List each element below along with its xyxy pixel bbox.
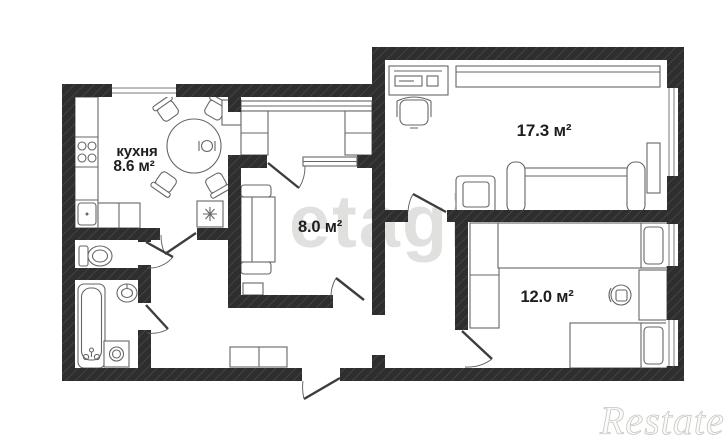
wall-segment xyxy=(228,84,385,97)
wall-segment xyxy=(138,330,151,381)
office-chair xyxy=(397,97,431,128)
window-kitchen xyxy=(112,84,176,97)
wall-segment xyxy=(62,268,151,280)
room-area-kitchen: 8.6 м² xyxy=(113,158,154,175)
wall-shelf xyxy=(647,143,660,193)
wall-segment xyxy=(228,295,333,308)
wall-segment xyxy=(455,210,468,330)
window-living xyxy=(666,88,678,176)
armchair xyxy=(456,176,495,213)
bed-top xyxy=(498,223,667,268)
wall-segment xyxy=(447,210,684,222)
side-table xyxy=(243,283,263,295)
room-area-bedroom: 12.0 м² xyxy=(521,288,575,306)
long-cabinet xyxy=(456,66,660,87)
floorplan-drawing: etagi xyxy=(0,0,725,444)
nightstand xyxy=(639,270,667,320)
window-bedroom-2 xyxy=(666,320,678,366)
wall-segment xyxy=(372,47,684,60)
wall-segment xyxy=(62,84,112,97)
kitchen-sink xyxy=(78,203,96,225)
wall-segment xyxy=(372,47,385,315)
toilet xyxy=(79,246,112,266)
wall-segment xyxy=(340,368,684,381)
wall-segment xyxy=(372,210,408,222)
wall-segment xyxy=(197,228,241,240)
watermark-restate: Restate xyxy=(599,398,725,443)
bathroom-sink xyxy=(117,284,137,302)
bathtub xyxy=(78,284,105,368)
kitchen-cabinet xyxy=(98,203,140,228)
wall-segment xyxy=(138,265,151,303)
sofa-small xyxy=(241,185,275,274)
fridge xyxy=(197,201,223,227)
hallway-cabinet xyxy=(230,347,287,367)
wall-segment xyxy=(357,155,372,168)
sofa-large xyxy=(507,162,645,213)
window-bedroom-1 xyxy=(666,224,678,266)
room-area-small-room: 8.0 м² xyxy=(298,218,343,236)
washing-machine xyxy=(104,341,129,367)
wardrobe xyxy=(470,223,499,328)
room-area-living: 17.3 м² xyxy=(517,121,572,140)
wall-segment xyxy=(138,228,151,242)
wall-segment xyxy=(62,368,302,381)
desk xyxy=(389,66,448,95)
floorplan-page: etagi xyxy=(0,0,725,444)
bed-bottom xyxy=(570,323,667,368)
wall-segment xyxy=(228,84,241,112)
